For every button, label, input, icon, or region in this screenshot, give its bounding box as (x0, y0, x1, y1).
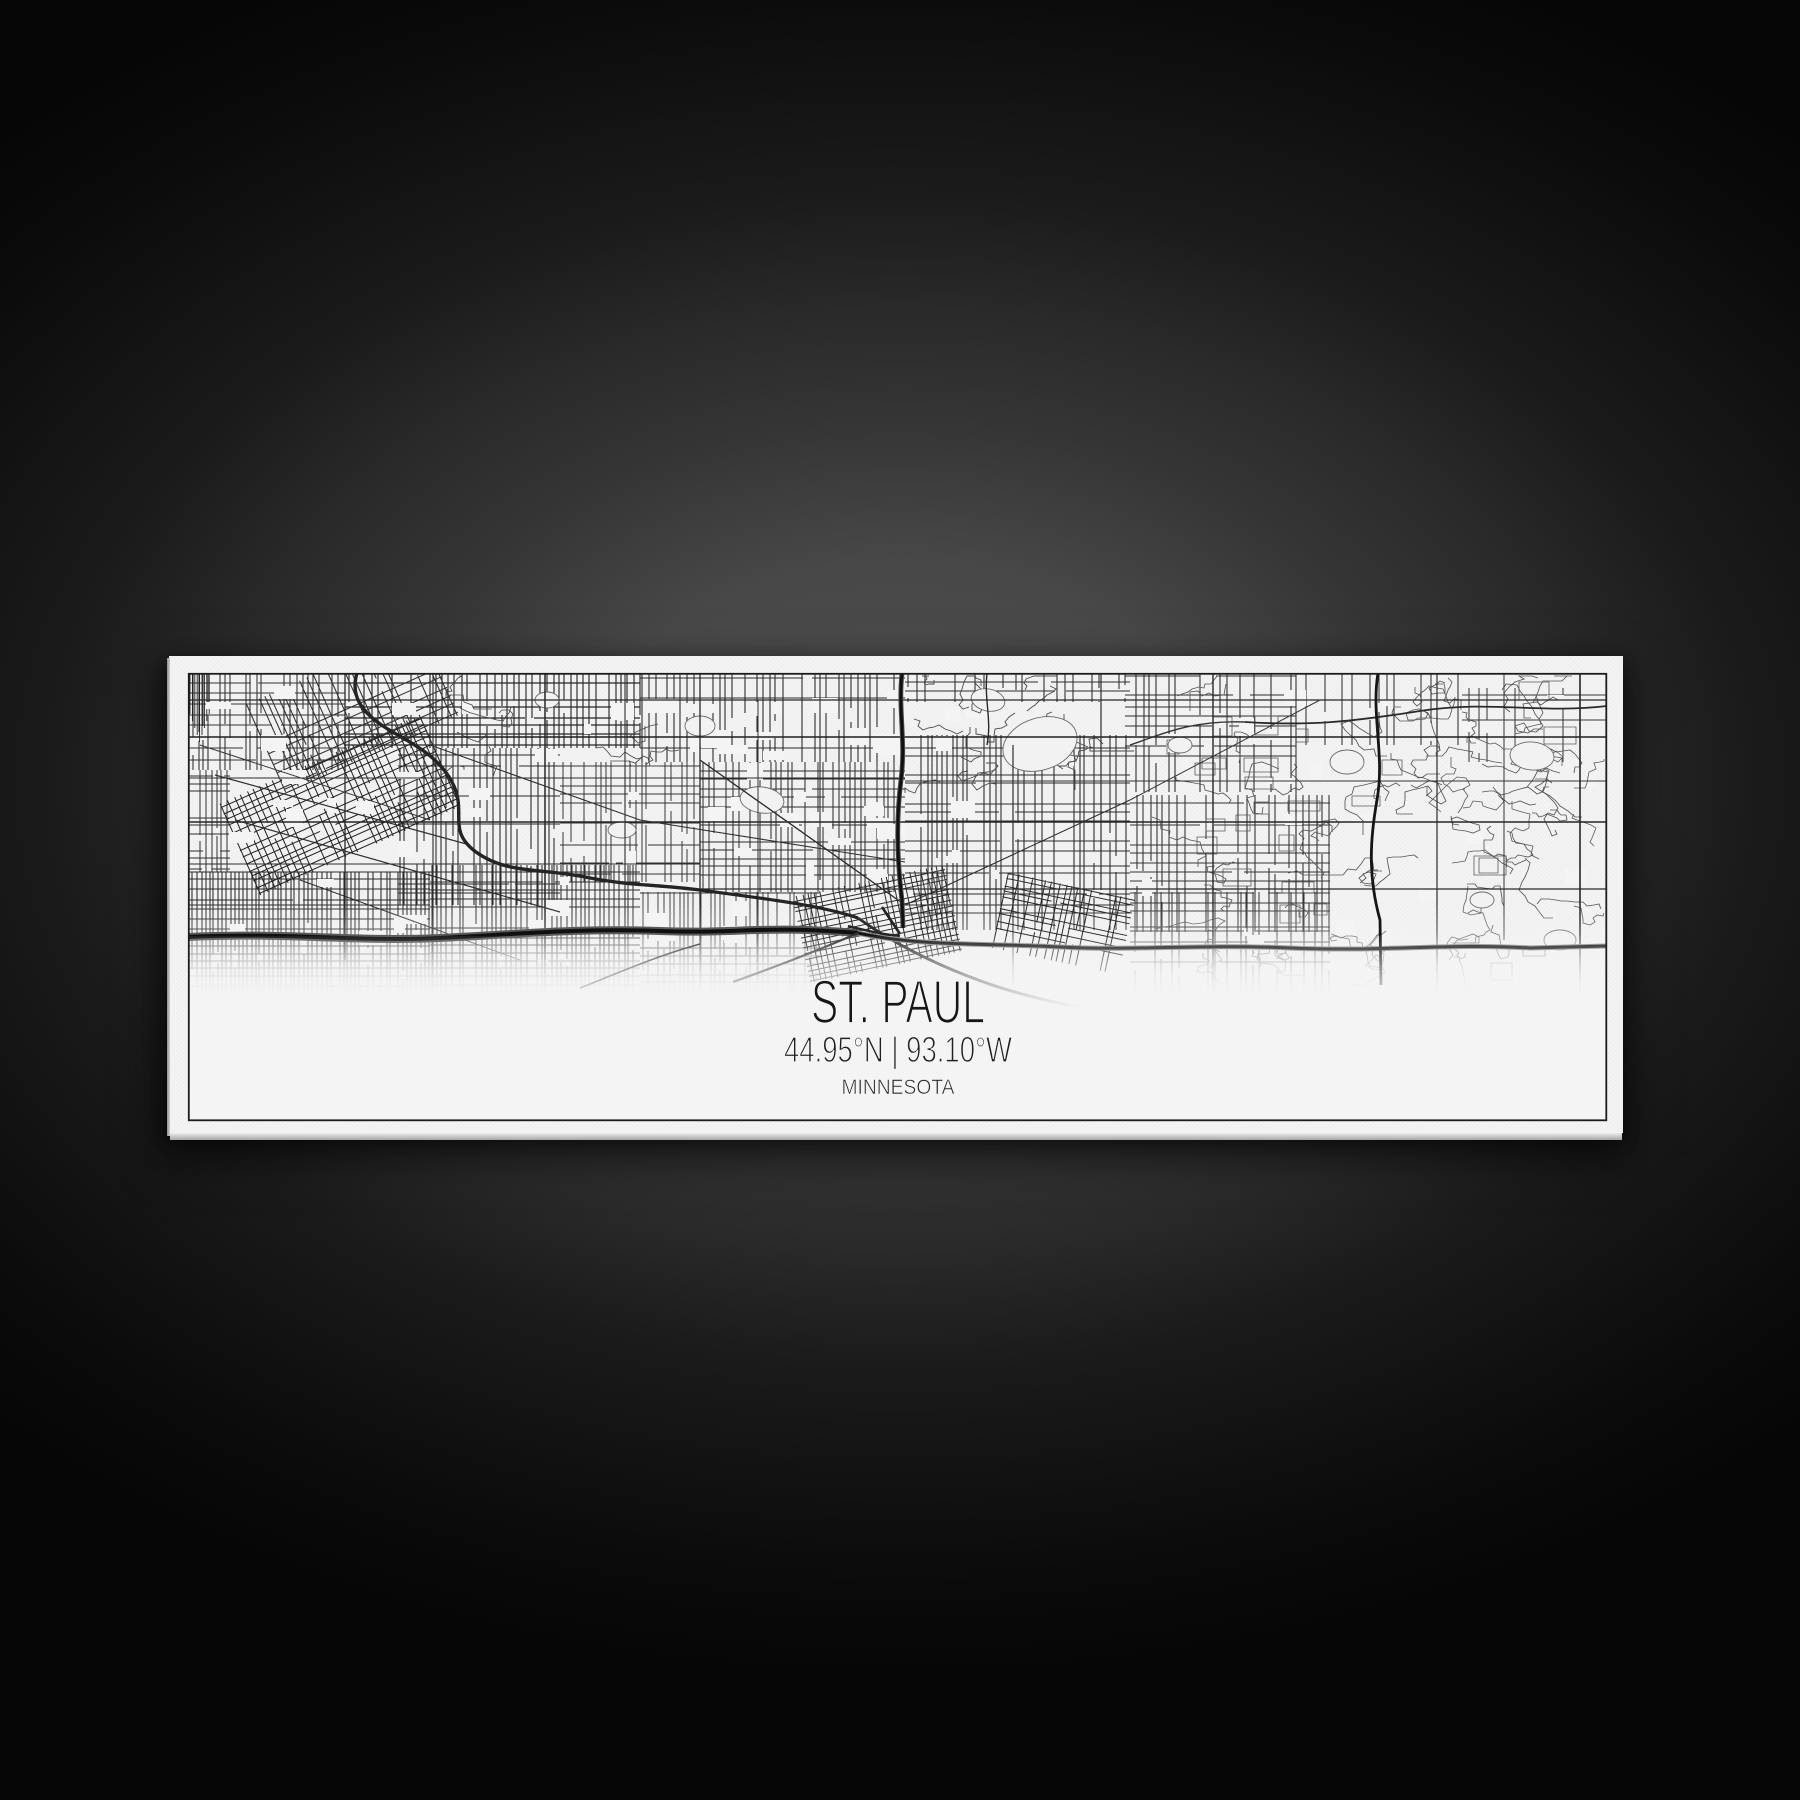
svg-text:MINNESOTA: MINNESOTA (842, 1076, 955, 1099)
svg-text:ST. PAUL: ST. PAUL (811, 968, 985, 1036)
svg-text:44.95°N | 93.10°W: 44.95°N | 93.10°W (784, 1029, 1012, 1070)
